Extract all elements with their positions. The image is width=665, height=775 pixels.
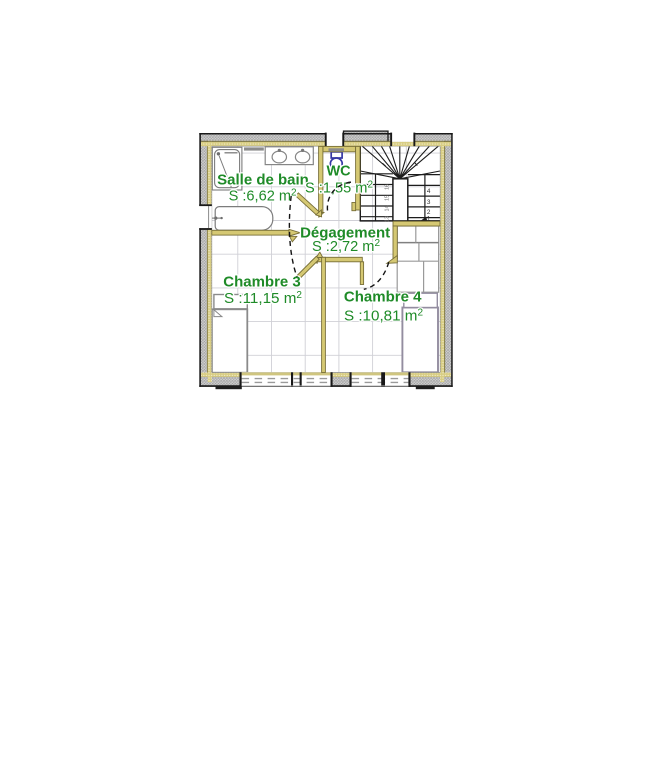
- svg-text:4: 4: [427, 188, 431, 195]
- svg-text:13: 13: [385, 216, 391, 222]
- svg-text:S :10,81 m2: S :10,81 m2: [344, 307, 423, 324]
- svg-text:S :11,15 m2: S :11,15 m2: [224, 290, 302, 307]
- svg-text:Salle de bain: Salle de bain: [217, 172, 309, 189]
- svg-text:16: 16: [385, 184, 391, 190]
- svg-text:S :1,55 m2: S :1,55 m2: [305, 180, 373, 197]
- svg-text:Chambre 3: Chambre 3: [223, 274, 301, 291]
- svg-text:15: 15: [385, 195, 391, 201]
- svg-text:Chambre 4: Chambre 4: [344, 289, 422, 306]
- svg-text:2: 2: [427, 209, 431, 216]
- svg-text:WC: WC: [327, 164, 352, 180]
- svg-text:3: 3: [427, 199, 431, 206]
- svg-text:14: 14: [385, 206, 391, 212]
- svg-text:S :2,72 m2: S :2,72 m2: [312, 238, 380, 255]
- svg-text:S :6,62 m2: S :6,62 m2: [229, 187, 297, 204]
